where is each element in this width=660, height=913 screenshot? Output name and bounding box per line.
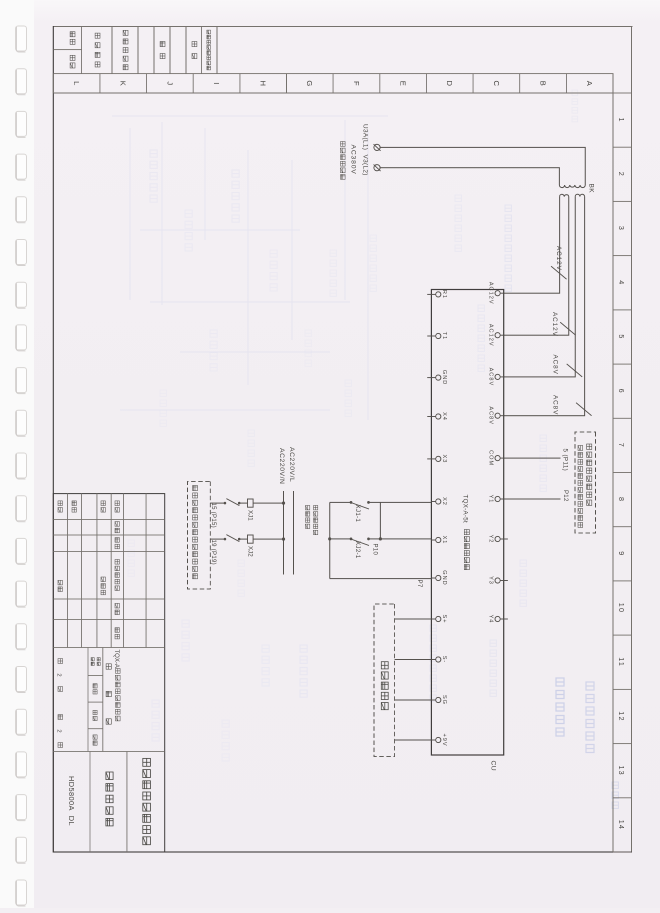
svg-text:AC12V: AC12V bbox=[551, 312, 558, 337]
svg-text:AC220V/L: AC220V/L bbox=[288, 447, 295, 482]
svg-text:H: H bbox=[259, 81, 268, 86]
svg-text:10: 10 bbox=[617, 603, 626, 613]
svg-text:P10: P10 bbox=[372, 544, 378, 556]
svg-text:14: 14 bbox=[617, 820, 626, 830]
svg-text:K: K bbox=[119, 81, 128, 86]
svg-text:+9V: +9V bbox=[441, 733, 447, 746]
svg-text:AC8V: AC8V bbox=[487, 368, 493, 387]
svg-text:G: G bbox=[305, 80, 314, 86]
svg-text:C: C bbox=[492, 81, 501, 87]
svg-text:TQX-A-5t: TQX-A-5t bbox=[462, 495, 469, 524]
svg-text:P7: P7 bbox=[416, 580, 423, 588]
svg-text:XJ2: XJ2 bbox=[247, 546, 254, 557]
svg-text:12: 12 bbox=[617, 711, 626, 721]
svg-text:11: 11 bbox=[617, 657, 626, 667]
svg-text:CU: CU bbox=[490, 761, 497, 772]
svg-text:AC8V: AC8V bbox=[487, 406, 493, 425]
svg-text:X4: X4 bbox=[441, 412, 447, 421]
svg-text:P12: P12 bbox=[562, 490, 568, 502]
svg-text:COM: COM bbox=[487, 450, 493, 466]
svg-text:D: D bbox=[445, 81, 454, 87]
svg-text:Y4: Y4 bbox=[487, 615, 493, 624]
svg-text:TQX-A: TQX-A bbox=[113, 650, 119, 668]
svg-text:R1: R1 bbox=[441, 290, 447, 299]
svg-text:X2: X2 bbox=[441, 497, 447, 506]
svg-text:Y1: Y1 bbox=[487, 495, 493, 504]
svg-text:3: 3 bbox=[617, 226, 626, 231]
svg-text:2: 2 bbox=[56, 729, 62, 732]
svg-text:15 (P15): 15 (P15) bbox=[210, 503, 216, 528]
svg-text:AC12V: AC12V bbox=[487, 324, 493, 347]
svg-text:Y3: Y3 bbox=[487, 576, 493, 585]
svg-text:SG: SG bbox=[441, 695, 447, 705]
svg-text:T1: T1 bbox=[441, 332, 447, 341]
svg-text:XJ1-1: XJ1-1 bbox=[354, 505, 361, 523]
svg-text:5: 5 bbox=[617, 334, 626, 339]
svg-text:S+: S+ bbox=[441, 615, 447, 624]
svg-text:AC8V: AC8V bbox=[552, 355, 559, 375]
svg-text:X1: X1 bbox=[441, 536, 447, 545]
svg-text:4: 4 bbox=[617, 280, 626, 285]
svg-text:19 (P19): 19 (P19) bbox=[210, 540, 216, 565]
svg-text:GND: GND bbox=[441, 370, 447, 385]
svg-text:U3A(L1) V3(L2): U3A(L1) V3(L2) bbox=[362, 124, 369, 176]
svg-text:L: L bbox=[72, 81, 81, 85]
svg-text:AC380V: AC380V bbox=[350, 145, 357, 175]
svg-text:Y2: Y2 bbox=[487, 535, 493, 544]
svg-text:J: J bbox=[165, 81, 174, 85]
svg-text:5 (P11): 5 (P11) bbox=[562, 449, 569, 472]
svg-text:E: E bbox=[399, 81, 408, 86]
svg-text:BK: BK bbox=[588, 184, 595, 194]
svg-text:X3: X3 bbox=[441, 454, 447, 463]
svg-text:GND: GND bbox=[441, 570, 447, 585]
svg-text:2: 2 bbox=[617, 172, 626, 177]
svg-text:7: 7 bbox=[617, 443, 626, 448]
svg-text:6: 6 bbox=[617, 389, 626, 394]
svg-text:9: 9 bbox=[617, 551, 626, 556]
svg-text:I: I bbox=[212, 82, 221, 84]
svg-text:AC8V: AC8V bbox=[552, 395, 559, 415]
svg-text:2: 2 bbox=[56, 673, 62, 676]
svg-text:13: 13 bbox=[617, 765, 626, 775]
svg-text:A: A bbox=[585, 81, 594, 87]
svg-text:8: 8 bbox=[617, 497, 626, 502]
svg-text:XJ2-1: XJ2-1 bbox=[354, 541, 361, 559]
svg-text:XJ1: XJ1 bbox=[247, 510, 254, 521]
svg-text:B: B bbox=[538, 81, 547, 86]
svg-text:AC12V: AC12V bbox=[555, 246, 562, 271]
svg-text:S-: S- bbox=[441, 656, 447, 664]
svg-text:F: F bbox=[352, 81, 361, 86]
svg-text:HD5800A DL: HD5800A DL bbox=[67, 776, 76, 826]
svg-text:AC12V: AC12V bbox=[487, 282, 493, 305]
svg-text:1: 1 bbox=[617, 117, 626, 122]
svg-text:AC220V/N: AC220V/N bbox=[278, 448, 285, 485]
